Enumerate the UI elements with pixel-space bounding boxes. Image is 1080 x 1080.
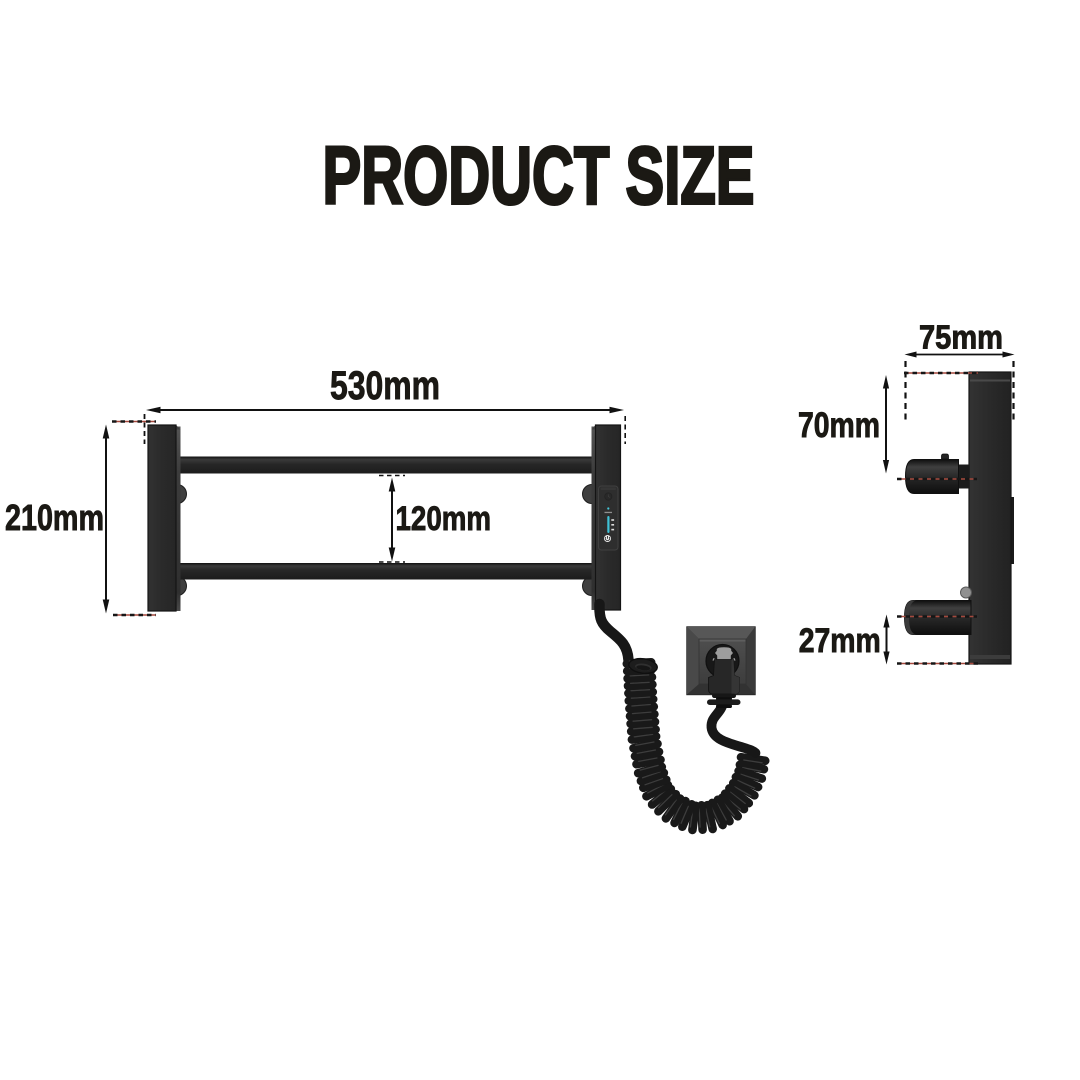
svg-text:210mm: 210mm <box>5 497 104 538</box>
svg-text:PRODUCT SIZE: PRODUCT SIZE <box>323 131 755 222</box>
svg-text:120mm: 120mm <box>396 500 492 538</box>
svg-text:530mm: 530mm <box>330 364 440 408</box>
svg-text:27mm: 27mm <box>799 622 881 660</box>
svg-text:75mm: 75mm <box>919 318 1003 355</box>
svg-text:70mm: 70mm <box>798 406 880 445</box>
